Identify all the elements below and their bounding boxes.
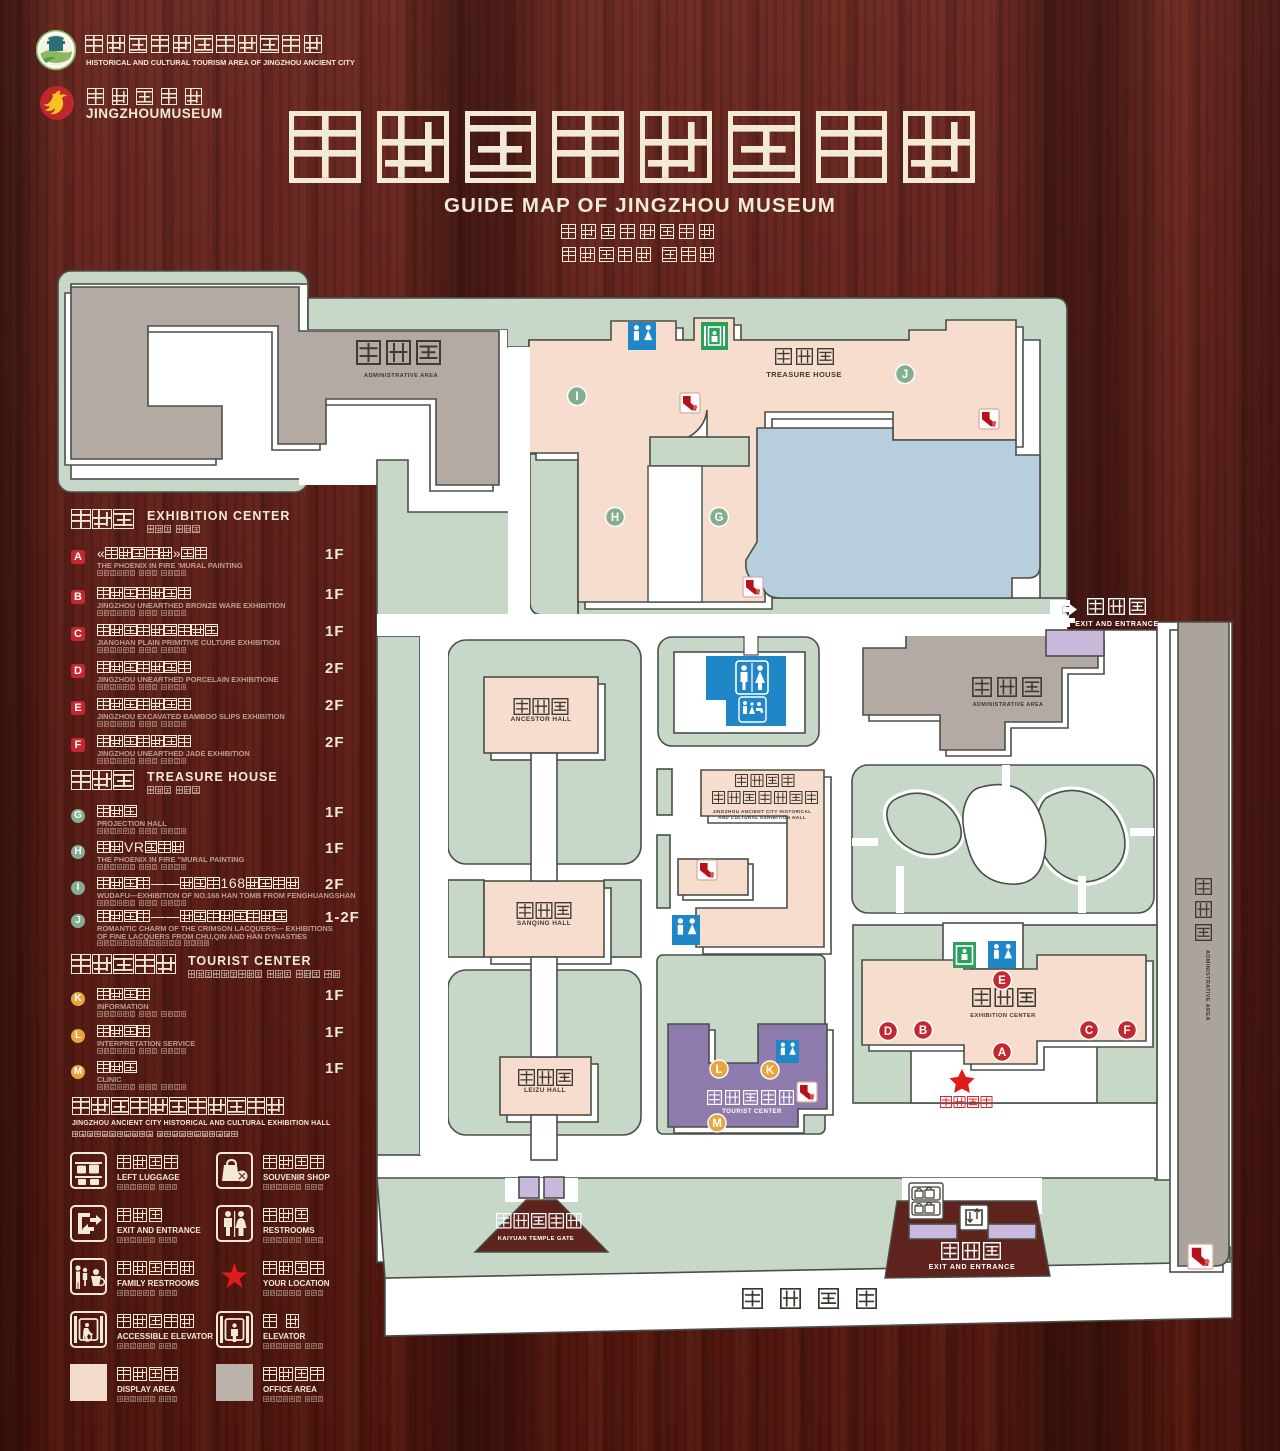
svg-text:D: D (884, 1026, 892, 1038)
svg-text:KAIYUAN TEMPLE GATE: KAIYUAN TEMPLE GATE (498, 1236, 574, 1242)
svg-text:ADMINISTRATIVE AREA: ADMINISTRATIVE AREA (973, 702, 1044, 708)
svg-text:A: A (998, 1047, 1006, 1059)
svg-text:J: J (902, 369, 908, 381)
svg-text:EXIT AND ENTRANCE: EXIT AND ENTRANCE (1075, 621, 1158, 628)
svg-text:EXIT AND ENTRANCE: EXIT AND ENTRANCE (929, 1264, 1016, 1271)
svg-text:LEIZU HALL: LEIZU HALL (524, 1087, 566, 1094)
svg-text:B: B (919, 1025, 927, 1037)
svg-text:H: H (611, 512, 619, 524)
svg-text:F: F (1123, 1025, 1130, 1037)
svg-text:K: K (766, 1065, 775, 1077)
svg-text:I: I (575, 391, 578, 403)
svg-text:C: C (1085, 1025, 1093, 1037)
svg-text:TOURIST CENTER: TOURIST CENTER (722, 1108, 782, 1115)
svg-text:EXHIBITION CENTER: EXHIBITION CENTER (970, 1013, 1036, 1019)
svg-text:JINGZHOU ANCIENT CITY HISTORIC: JINGZHOU ANCIENT CITY HISTORICAL (713, 809, 812, 814)
svg-text:ADMINISTRATIVE AREA: ADMINISTRATIVE AREA (364, 373, 439, 379)
svg-text:ADMINISTRATIVE AREA: ADMINISTRATIVE AREA (1204, 950, 1210, 1021)
svg-text:TREASURE HOUSE: TREASURE HOUSE (766, 370, 842, 379)
svg-text:L: L (715, 1064, 722, 1076)
svg-text:E: E (998, 975, 1006, 987)
svg-text:AND CULTURAL EXHIBITION HALL: AND CULTURAL EXHIBITION HALL (718, 815, 806, 820)
svg-text:SANQING HALL: SANQING HALL (517, 920, 571, 927)
svg-text:G: G (715, 512, 724, 524)
svg-text:ANCESTOR HALL: ANCESTOR HALL (511, 716, 572, 723)
svg-text:M: M (712, 1118, 722, 1130)
